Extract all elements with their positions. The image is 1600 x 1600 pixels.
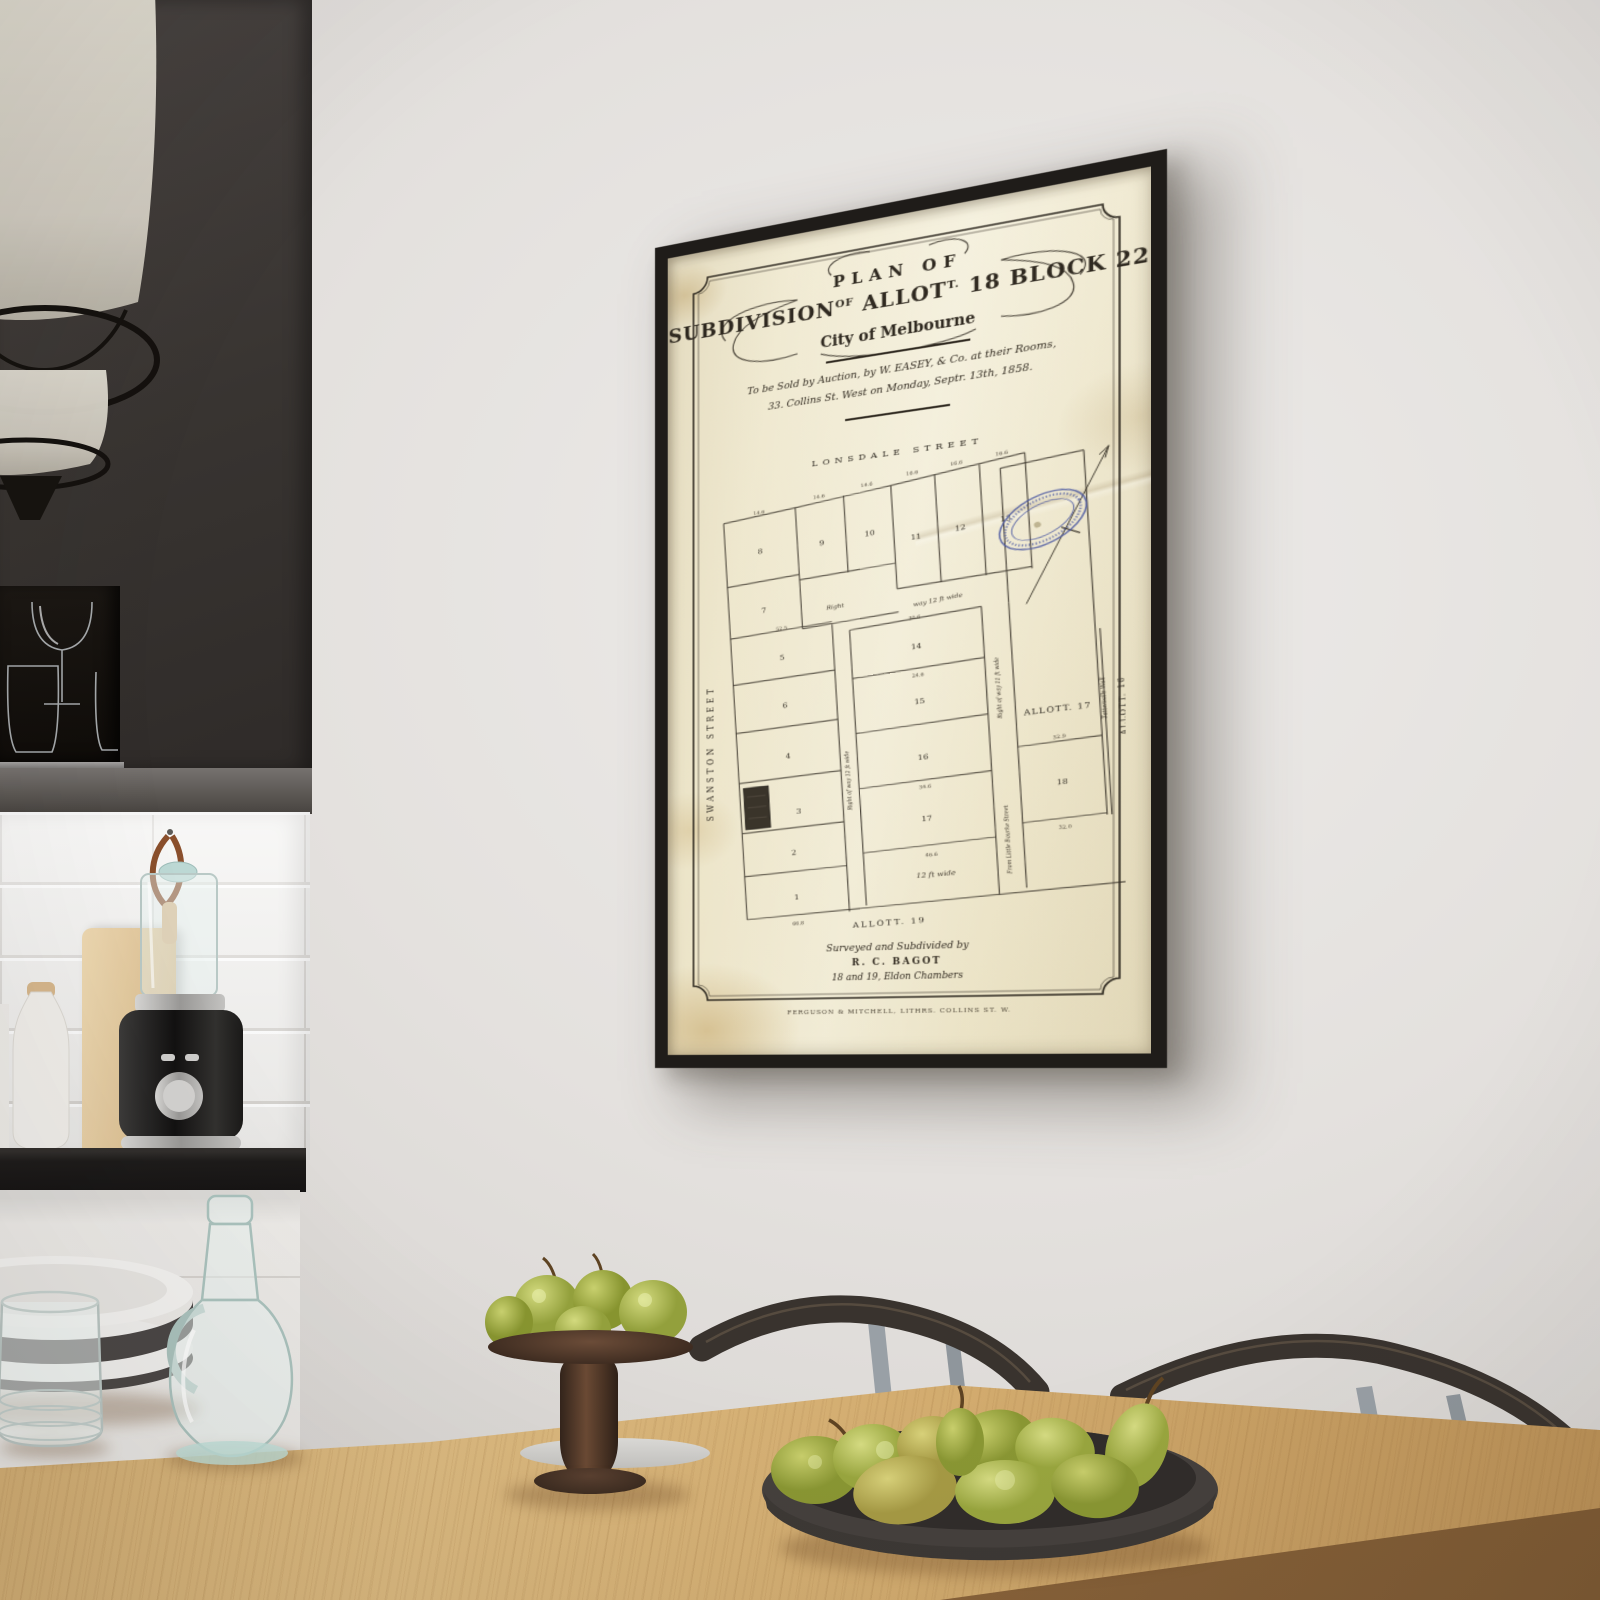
cake-stand-top <box>488 1330 693 1364</box>
ribbed-glass <box>0 1288 118 1458</box>
cake-stand-base <box>534 1468 646 1494</box>
pear-tray <box>755 1350 1225 1570</box>
glass-cruet <box>150 1190 310 1475</box>
cake-stand-stem <box>560 1352 618 1480</box>
scene: PLAN OF SUBDIVISIONOF ALLOTT. 18 BLOCK 2… <box>0 0 1600 1600</box>
